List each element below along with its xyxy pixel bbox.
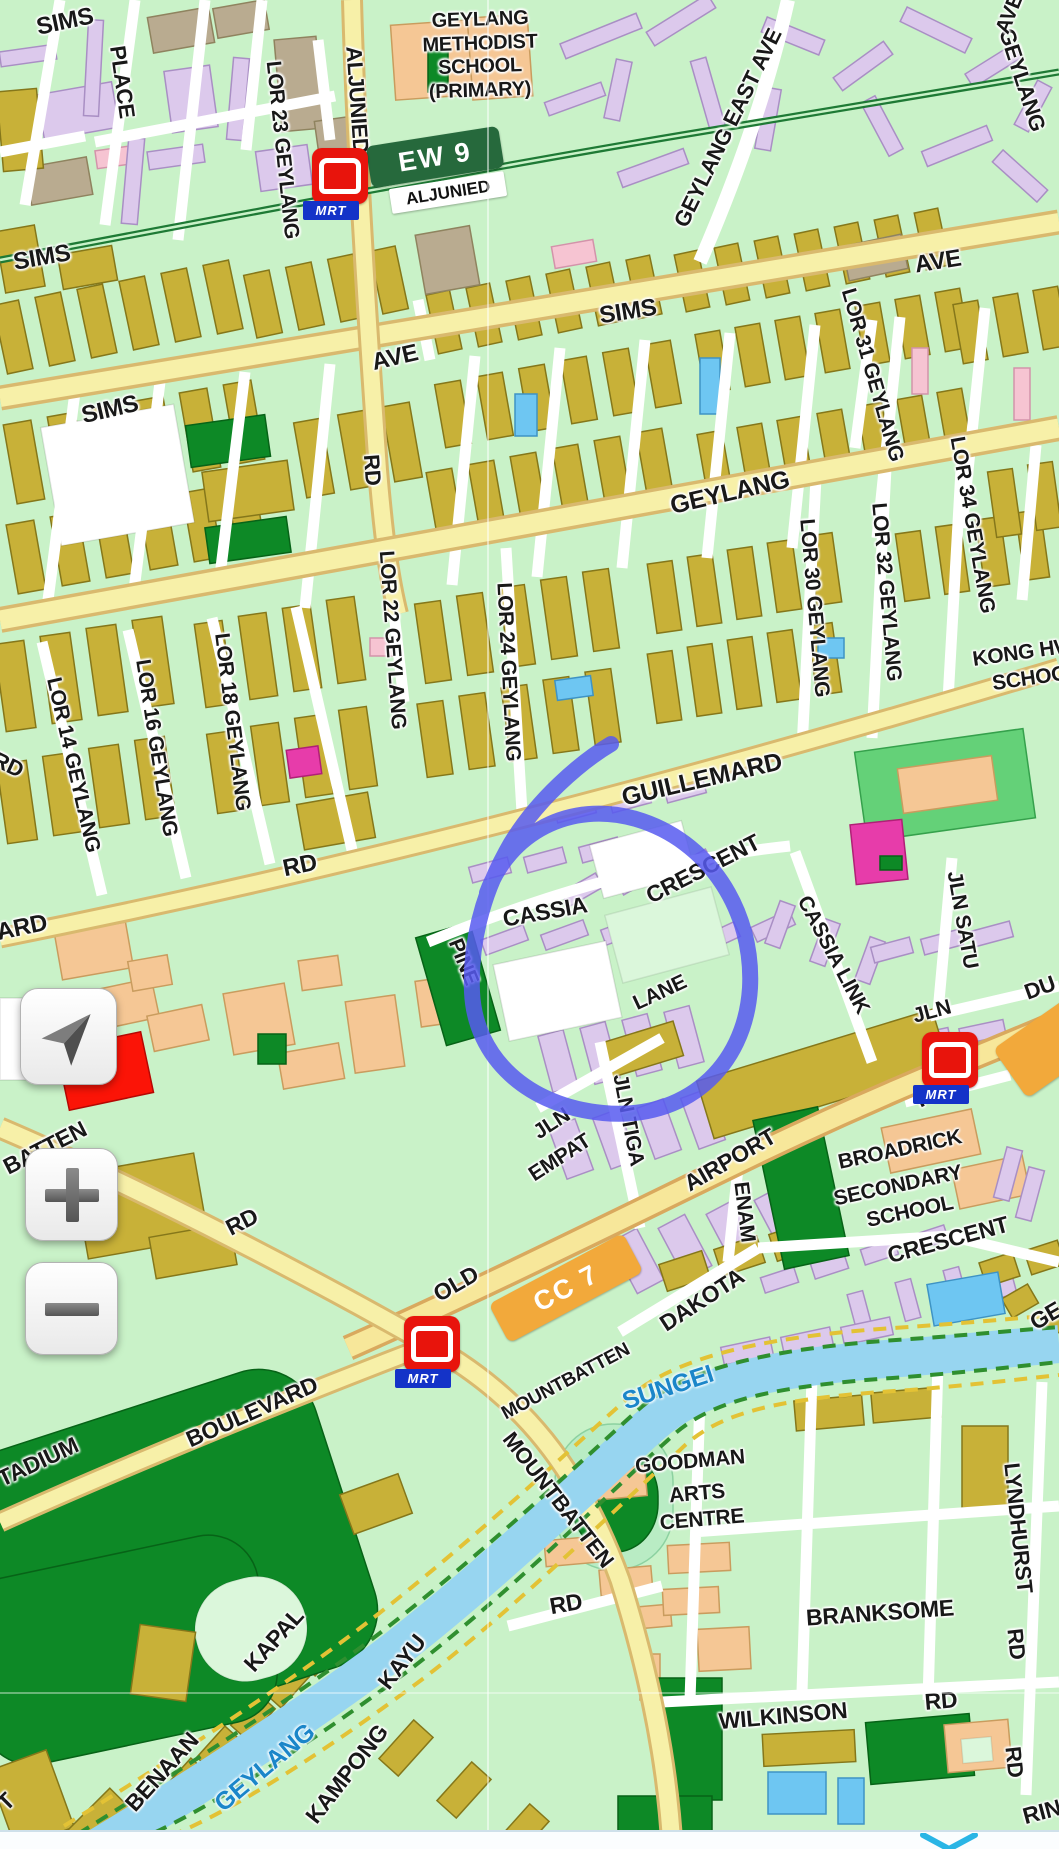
map-building — [697, 1627, 751, 1672]
chevron-down-icon — [918, 1833, 980, 1849]
map-building — [961, 1737, 993, 1764]
map-building — [298, 955, 342, 990]
map-building — [467, 14, 533, 100]
map-building — [255, 145, 312, 192]
plus-icon — [44, 1167, 100, 1223]
map-building — [880, 856, 902, 870]
map-building — [415, 226, 480, 295]
bottom-sheet-handle[interactable] — [0, 1830, 1059, 1849]
zoom-in-button[interactable] — [25, 1148, 118, 1241]
map-building — [700, 358, 720, 414]
mrt-station-code: EW 9 — [396, 136, 474, 178]
navigation-arrow-icon — [33, 1001, 105, 1073]
map-building — [768, 1772, 826, 1814]
map-canvas[interactable]: SIMSPLACELOR 23 GEYLANGALJUNIEDSIMSGEYLA… — [0, 0, 1059, 1849]
map-building — [962, 1426, 1008, 1508]
map-building — [818, 638, 844, 658]
map-building — [428, 50, 448, 92]
map-building — [871, 1387, 941, 1423]
map-building — [515, 394, 537, 436]
map-building — [912, 348, 928, 394]
map-building — [1014, 368, 1030, 420]
mrt-icon[interactable]: MRT — [312, 148, 370, 220]
map-building — [345, 995, 405, 1073]
mrt-icon[interactable]: MRT — [922, 1032, 980, 1104]
map-base-layer — [0, 0, 1059, 1849]
mrt-icon[interactable]: MRT — [404, 1316, 462, 1388]
minus-icon — [44, 1281, 100, 1337]
map-building — [762, 1730, 856, 1767]
zoom-out-button[interactable] — [25, 1262, 118, 1355]
map-building — [286, 746, 322, 778]
train-icon — [922, 1032, 978, 1088]
map-building — [555, 676, 593, 701]
map-building — [130, 1624, 195, 1701]
map-building — [128, 955, 173, 991]
locate-button[interactable] — [20, 988, 117, 1085]
train-icon — [404, 1316, 460, 1372]
map-building — [258, 1034, 286, 1064]
train-icon — [312, 148, 368, 204]
map-building — [838, 1778, 864, 1824]
map-building — [850, 819, 908, 884]
